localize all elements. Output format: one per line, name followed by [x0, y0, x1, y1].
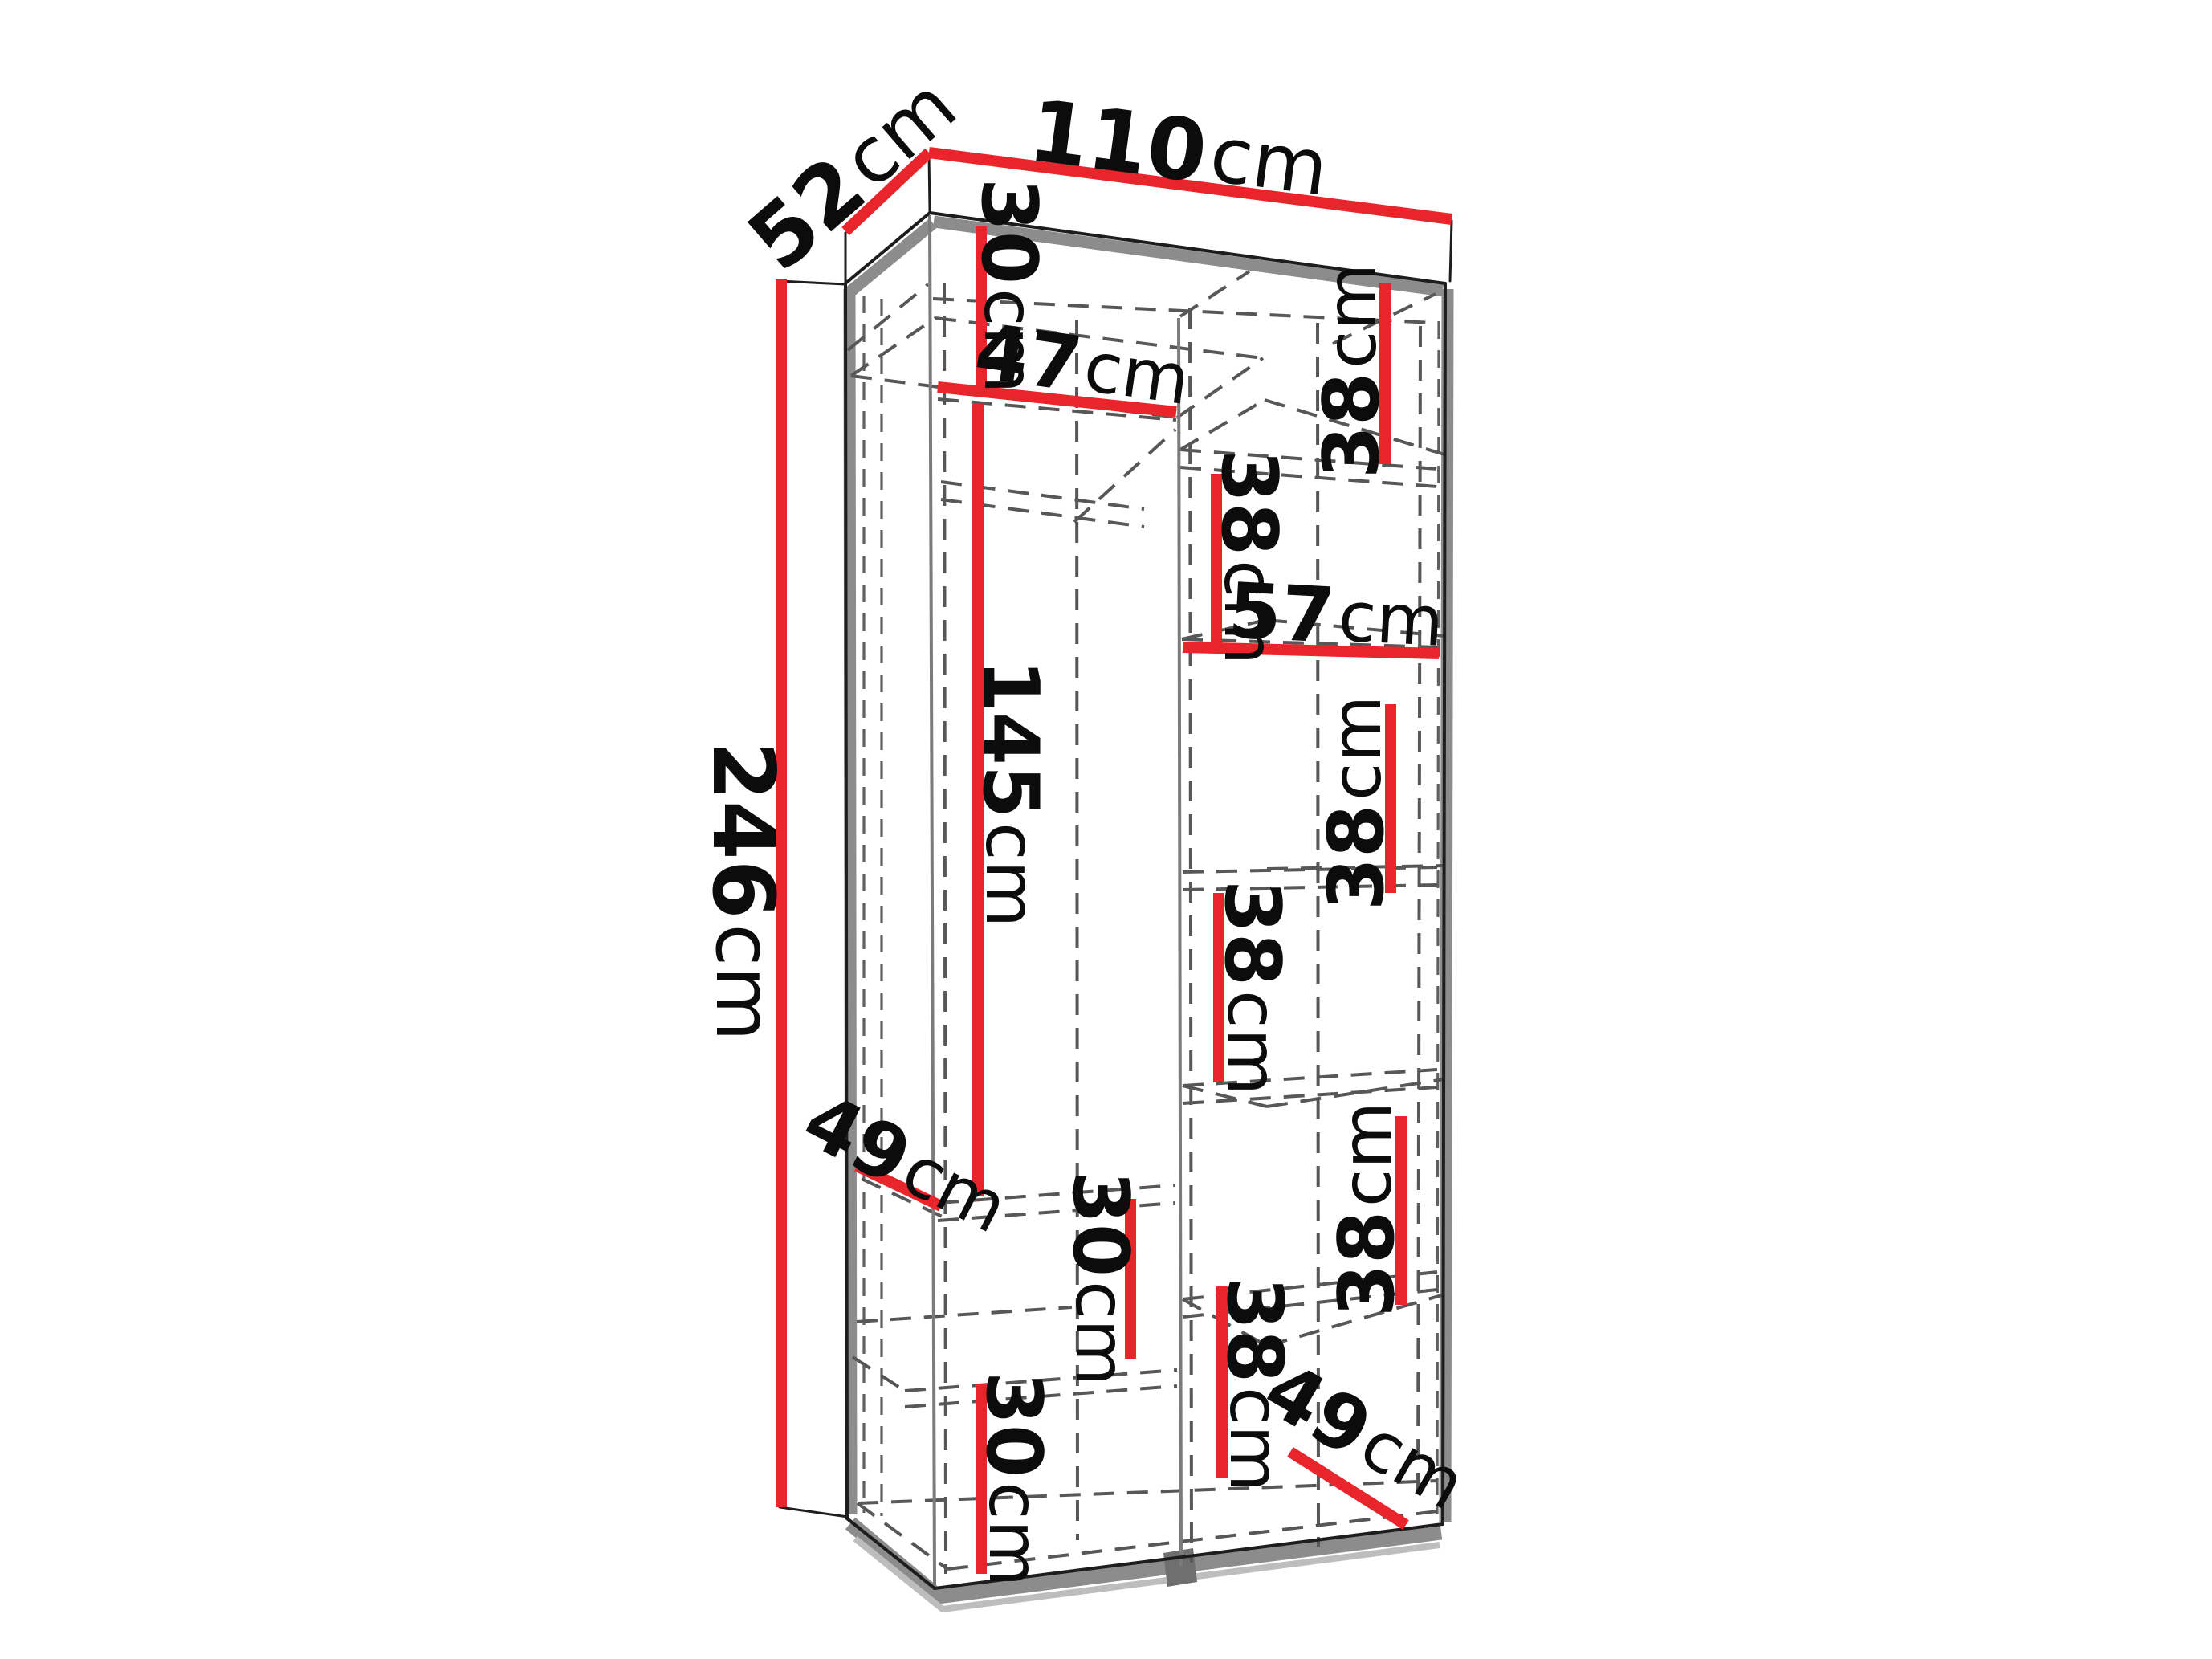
left-edge-shadow [849, 289, 851, 1514]
dim-label-145: 145cm [966, 659, 1054, 927]
diagram-canvas: 52cm 110cm 246cm 30cm 47cm 145cm 49cm 30… [0, 0, 2212, 1659]
width-dim-tick-right [1450, 221, 1452, 281]
front-left-edge [845, 283, 847, 1518]
hidden-vertical [1190, 308, 1192, 1563]
dim-label-height-246: 246cm [695, 741, 793, 1041]
height-dim-tick-bottom [780, 1507, 848, 1517]
dim-label-width-110: 110cm [1024, 81, 1334, 218]
wardrobe-dimension-diagram: 52cm 110cm 246cm 30cm 47cm 145cm 49cm 30… [0, 0, 2212, 1659]
